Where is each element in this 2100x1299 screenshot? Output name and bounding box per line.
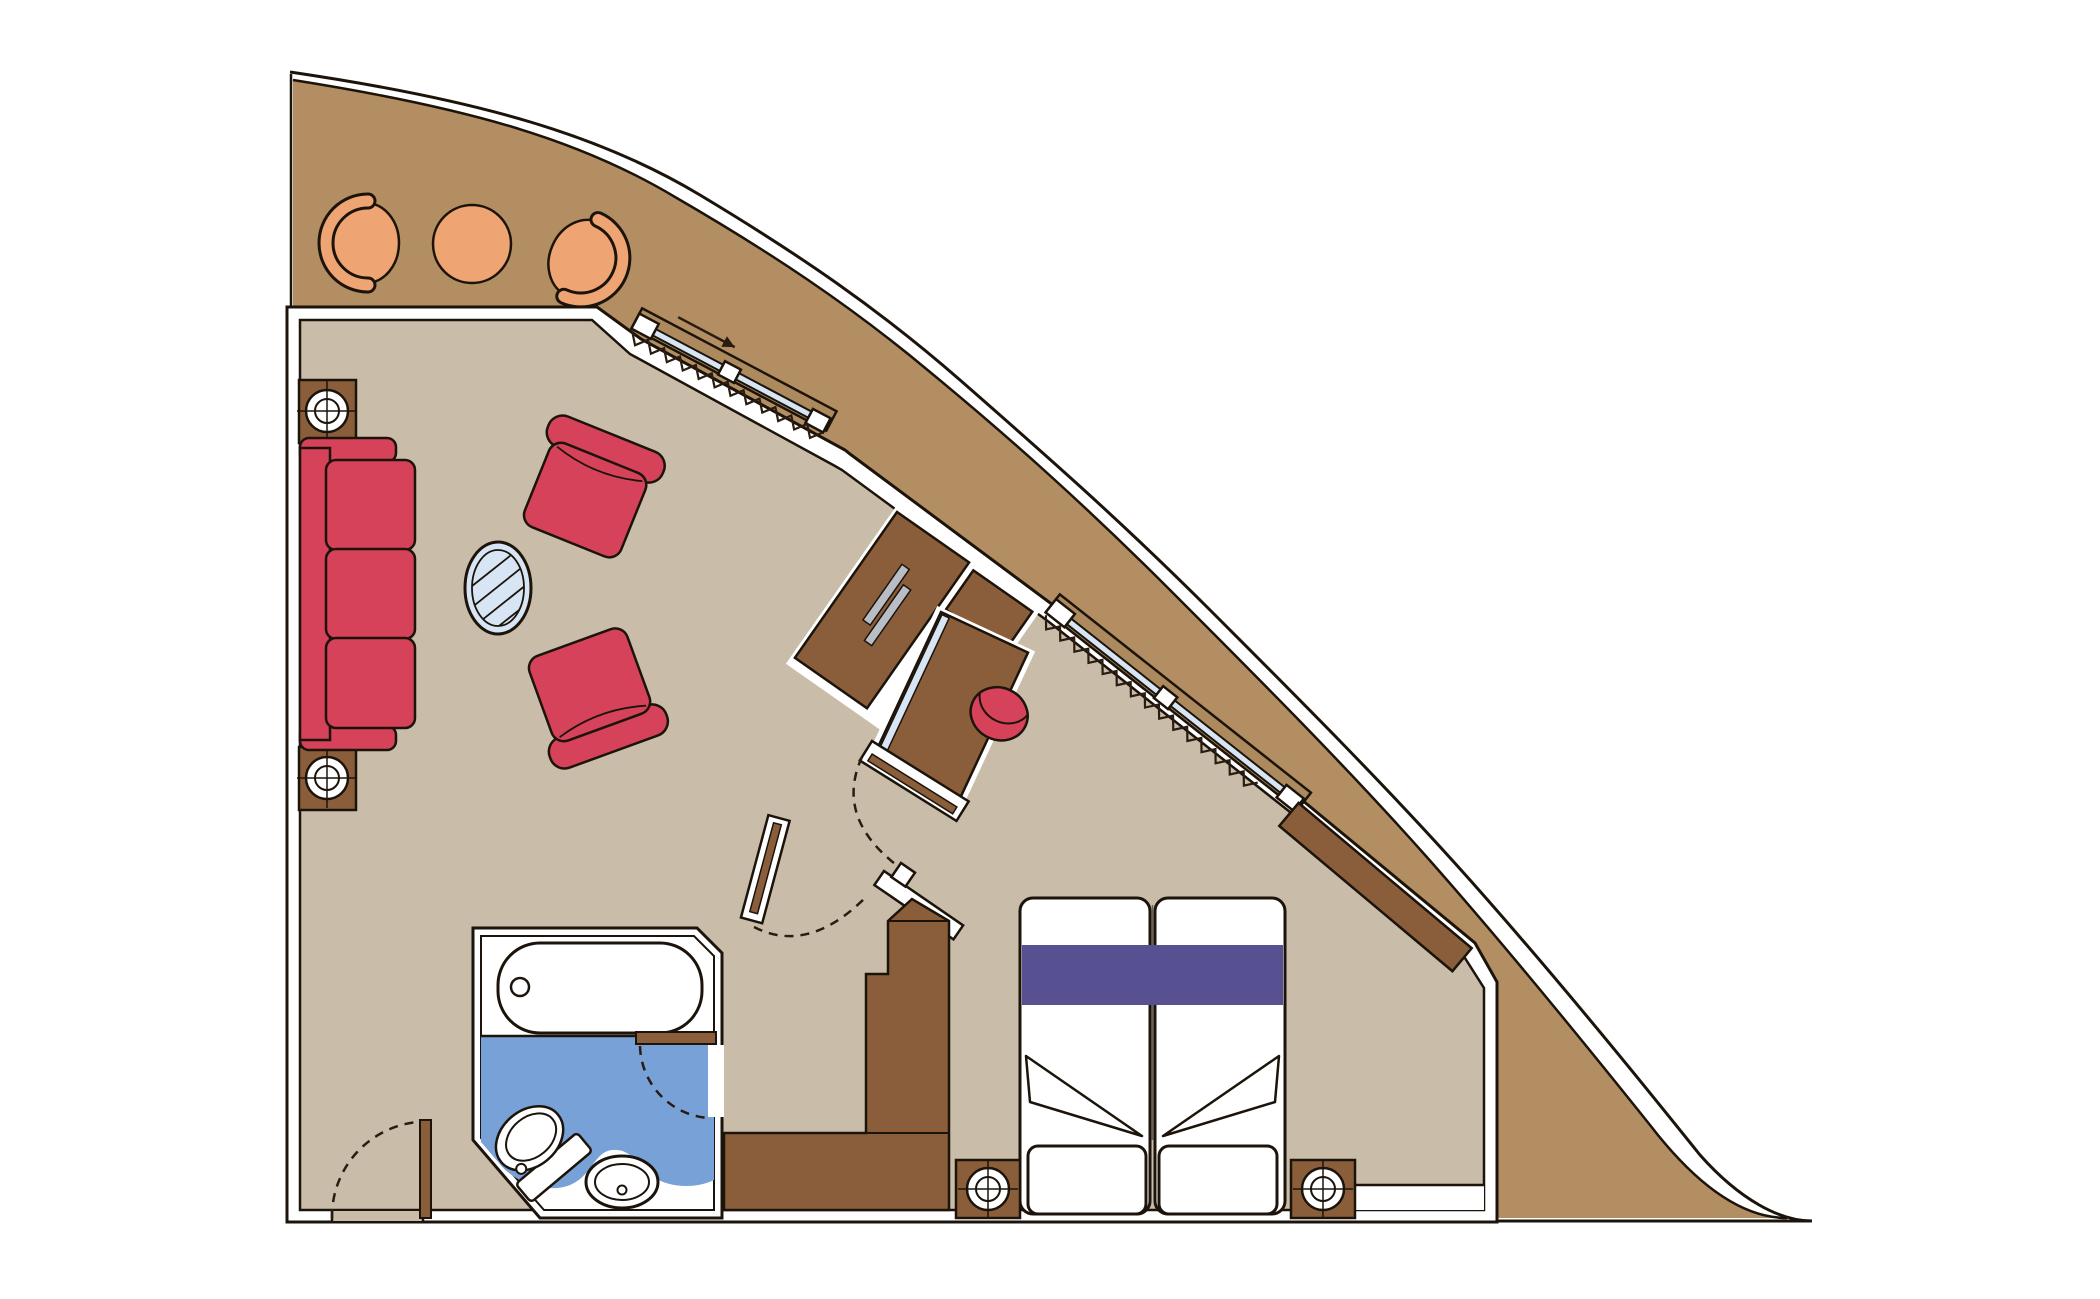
floor-plan-page	[0, 0, 2100, 1299]
folded-duvet-right	[1159, 1146, 1277, 1214]
washbasin	[586, 1156, 658, 1208]
floor-plan-canvas	[0, 0, 2100, 1299]
bed-runner	[1022, 945, 1283, 1005]
door-leaf	[636, 1032, 716, 1044]
nightstand-left	[956, 1159, 1020, 1219]
door-leaf	[420, 1120, 431, 1218]
bathroom	[473, 928, 724, 1218]
folded-duvet-left	[1028, 1146, 1146, 1214]
bedroom-bottom-wall-step	[1355, 1185, 1484, 1210]
balcony-round-table	[433, 205, 511, 283]
sofa-cushion	[326, 460, 415, 550]
sofa-cushion	[326, 638, 415, 728]
nightstand-right	[1291, 1159, 1355, 1219]
speaker-column-upper	[297, 380, 357, 443]
balcony-tub-chair-left	[326, 201, 399, 285]
sofa	[300, 438, 415, 750]
speaker-column-lower	[297, 747, 357, 810]
bathtub-faucet	[511, 978, 529, 996]
sofa-cushion	[326, 549, 415, 639]
